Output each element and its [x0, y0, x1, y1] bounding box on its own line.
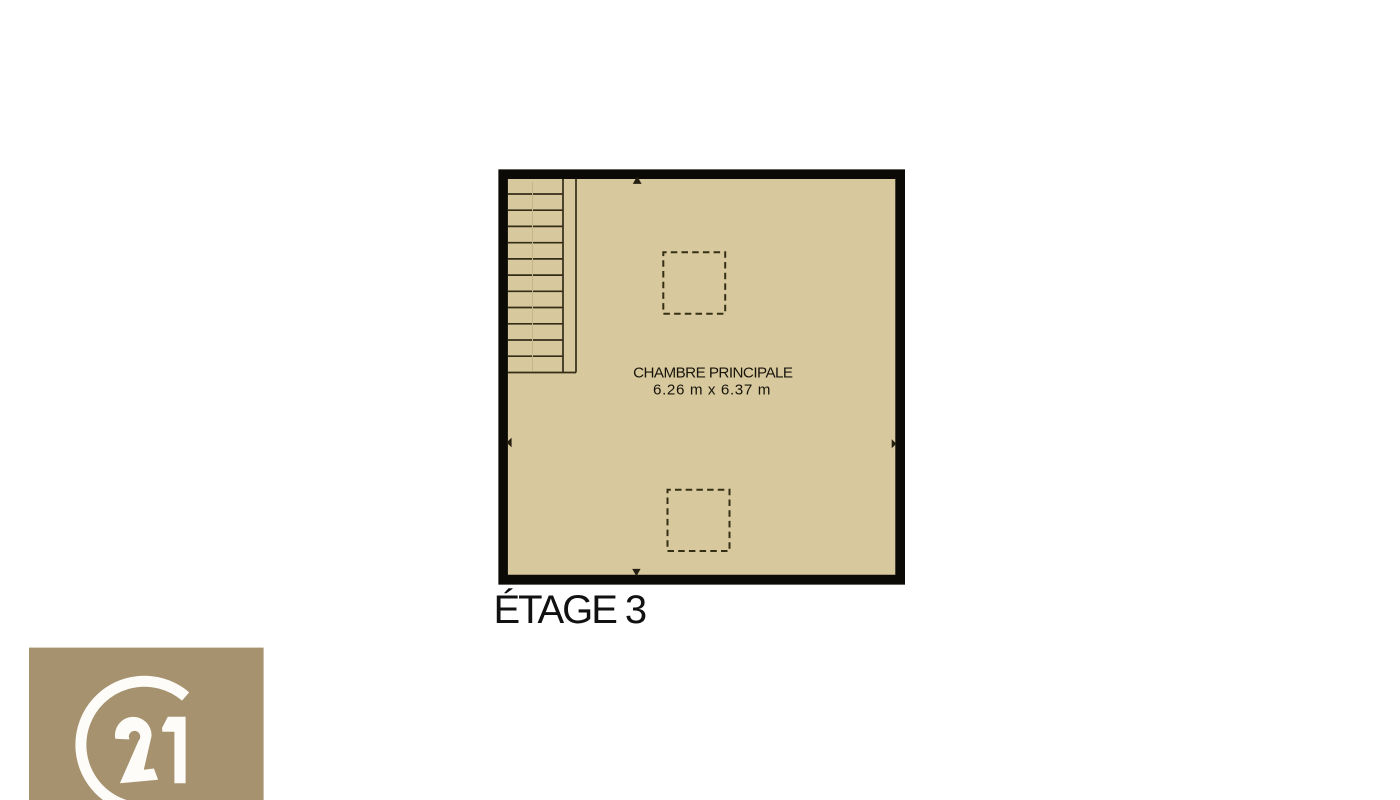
svg-text:6.26 m x 6.37 m: 6.26 m x 6.37 m: [653, 382, 771, 399]
svg-text:ÉTAGE 3: ÉTAGE 3: [494, 587, 646, 632]
svg-text:CHAMBRE PRINCIPALE: CHAMBRE PRINCIPALE: [633, 365, 793, 382]
